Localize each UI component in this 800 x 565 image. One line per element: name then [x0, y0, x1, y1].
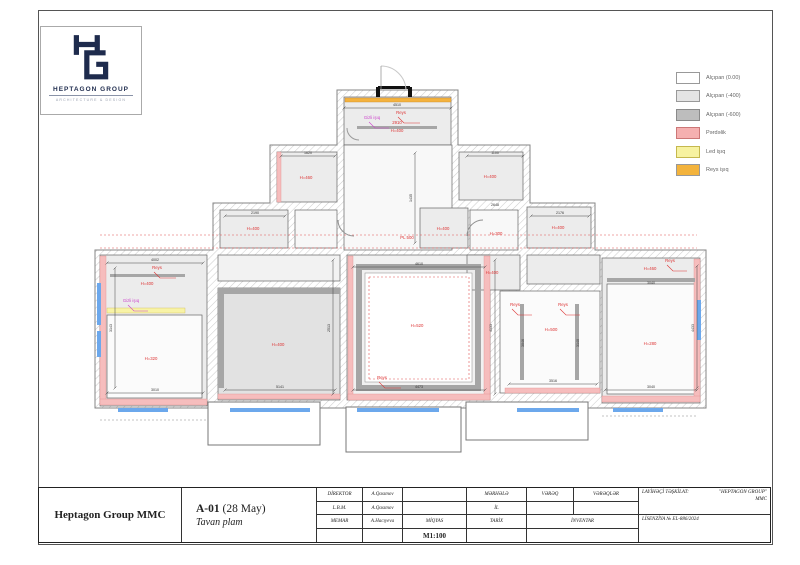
- dimension-text: 2513: [327, 324, 331, 332]
- dimension-text: 3143: [109, 324, 113, 332]
- pink-strip: [348, 394, 490, 400]
- height-label: Reys: [558, 302, 568, 307]
- height-label: H=400: [486, 270, 499, 275]
- ceiling-plan-drawing: 4510162011002190217626484002461030105141…: [85, 78, 715, 463]
- sheet-number: A-01 (28 May): [196, 503, 266, 515]
- height-label: H=400: [484, 174, 497, 179]
- license-cell: LİSENZİYA № EL-886/2024: [639, 515, 770, 542]
- blue-strip: [697, 300, 701, 340]
- empty-cell: [317, 529, 363, 542]
- sheets-label: VƏRƏQLƏR: [574, 488, 639, 502]
- blue-strip: [230, 408, 310, 412]
- yellow-strip: [107, 308, 185, 313]
- designer-org-cell: LAYİHƏÇİ TƏŞKİLAT: "HEPTAGON GROUP" MMC: [639, 488, 770, 515]
- role-lbm-name: A.Qasımov: [363, 502, 403, 515]
- height-label: H=280: [644, 341, 657, 346]
- room: [470, 210, 518, 250]
- black-strip: [408, 87, 412, 97]
- empty-cell: [403, 502, 467, 515]
- height-label: H=400: [552, 225, 565, 230]
- hg-monogram-icon: [68, 33, 114, 81]
- height-label: Reys: [152, 265, 162, 270]
- height-label: Gizli işıq: [364, 115, 381, 120]
- blue-strip: [118, 408, 168, 412]
- dimension-text: 3140: [576, 339, 580, 347]
- pink-strip: [348, 256, 353, 399]
- dimension-text: 4133: [489, 324, 493, 332]
- designer-label: LAYİHƏÇİ TƏŞKİLAT:: [642, 490, 689, 495]
- dimension-text: 4473: [415, 385, 423, 389]
- role-lbm-label: L.B.M.: [317, 502, 363, 515]
- dimension-text: 1435: [409, 194, 413, 202]
- dimension-text: 3040: [647, 281, 655, 285]
- dimension-text: 1100: [491, 151, 499, 155]
- dimension-text: 3040: [647, 385, 655, 389]
- sheet-label: VƏRƏQ: [527, 488, 574, 502]
- pink-strip: [277, 152, 281, 202]
- role-director-name: A.Qasımov: [363, 488, 403, 502]
- pink-strip: [602, 396, 700, 402]
- orange-strip: [345, 98, 451, 102]
- height-label: H=460: [300, 175, 313, 180]
- terrace: [466, 402, 588, 440]
- inventory-label: İNVENTAR: [527, 515, 639, 529]
- terrace: [346, 407, 461, 452]
- height-label: Gizli işıq: [123, 298, 140, 303]
- dimension-text: 5141: [276, 385, 284, 389]
- empty-cell: [574, 502, 639, 515]
- dark-strip: [218, 288, 340, 294]
- dimension-text: 4510: [393, 103, 401, 107]
- role-memar-name: A.Hacıyeva: [363, 515, 403, 529]
- room: [218, 255, 340, 281]
- dimension-text: 2648: [491, 203, 499, 207]
- blue-strip: [357, 408, 439, 412]
- titleblock-sheet-info: A-01 (28 May) Tavan plam: [182, 488, 317, 542]
- dimension-text: 2176: [556, 211, 564, 215]
- role-director-label: DİREKTOR: [317, 488, 363, 502]
- room: [527, 255, 600, 284]
- sheet-title: Tavan plam: [196, 517, 243, 528]
- height-label: Reys: [396, 110, 406, 115]
- blue-strip: [97, 283, 101, 325]
- height-label: PL 500: [400, 235, 414, 240]
- dimension-text: 4433: [691, 324, 695, 332]
- pink-strip: [100, 256, 106, 404]
- dimension-text: 4002: [151, 258, 159, 262]
- empty-cell: [527, 502, 574, 515]
- dark-strip: [110, 274, 185, 277]
- dimension-text: 4610: [415, 262, 423, 266]
- height-label: H=400: [391, 128, 404, 133]
- blue-strip: [517, 408, 579, 412]
- title-block: Heptagon Group MMC A-01 (28 May) Tavan p…: [38, 487, 771, 543]
- titleblock-company: Heptagon Group MMC: [39, 488, 182, 542]
- pink-strip: [505, 388, 600, 393]
- drawing-sheet: HEPTAGON GROUP ARCHITECTURE & DESIGN Alç…: [0, 0, 800, 565]
- room: [607, 284, 695, 394]
- stage-label: MƏRHƏLƏ: [467, 488, 527, 502]
- pink-strip: [100, 399, 207, 405]
- height-label: Reys: [510, 302, 520, 307]
- height-label: H=400: [247, 226, 260, 231]
- height-label: H=400: [437, 226, 450, 231]
- empty-cell: [527, 529, 639, 542]
- height-label: Reys: [377, 375, 387, 380]
- dark-strip: [218, 288, 224, 388]
- blue-strip: [97, 331, 101, 357]
- empty-cell: [403, 488, 467, 502]
- room: [295, 210, 337, 248]
- height-label: Reys: [665, 258, 675, 263]
- date-label: TARİX: [467, 515, 527, 529]
- role-memar-label: MEMAR: [317, 515, 363, 529]
- height-label: 2910: [392, 120, 402, 125]
- dimension-text: 3516: [549, 379, 557, 383]
- height-label: H=300: [490, 231, 503, 236]
- dimension-text: 3010: [151, 388, 159, 392]
- year-label: İL: [467, 502, 527, 515]
- height-label: H=500: [545, 327, 558, 332]
- empty-cell: [363, 529, 403, 542]
- dimension-text: 1620: [304, 151, 312, 155]
- designer-value: "HEPTAGON GROUP" MMC: [719, 490, 767, 503]
- height-label: H=520: [411, 323, 424, 328]
- height-label: H=460: [644, 266, 657, 271]
- height-label: H=320: [145, 356, 158, 361]
- scale-label: MİQYAS: [403, 515, 467, 529]
- blue-strip: [613, 408, 663, 412]
- empty-cell: [467, 529, 527, 542]
- pink-strip: [218, 394, 340, 399]
- dimension-text: 2190: [251, 211, 259, 215]
- black-strip: [376, 87, 380, 97]
- height-label: H=400: [141, 281, 154, 286]
- scale-value: M1:100: [403, 529, 467, 542]
- height-label: H=400: [272, 342, 285, 347]
- dimension-text: 3046: [521, 339, 525, 347]
